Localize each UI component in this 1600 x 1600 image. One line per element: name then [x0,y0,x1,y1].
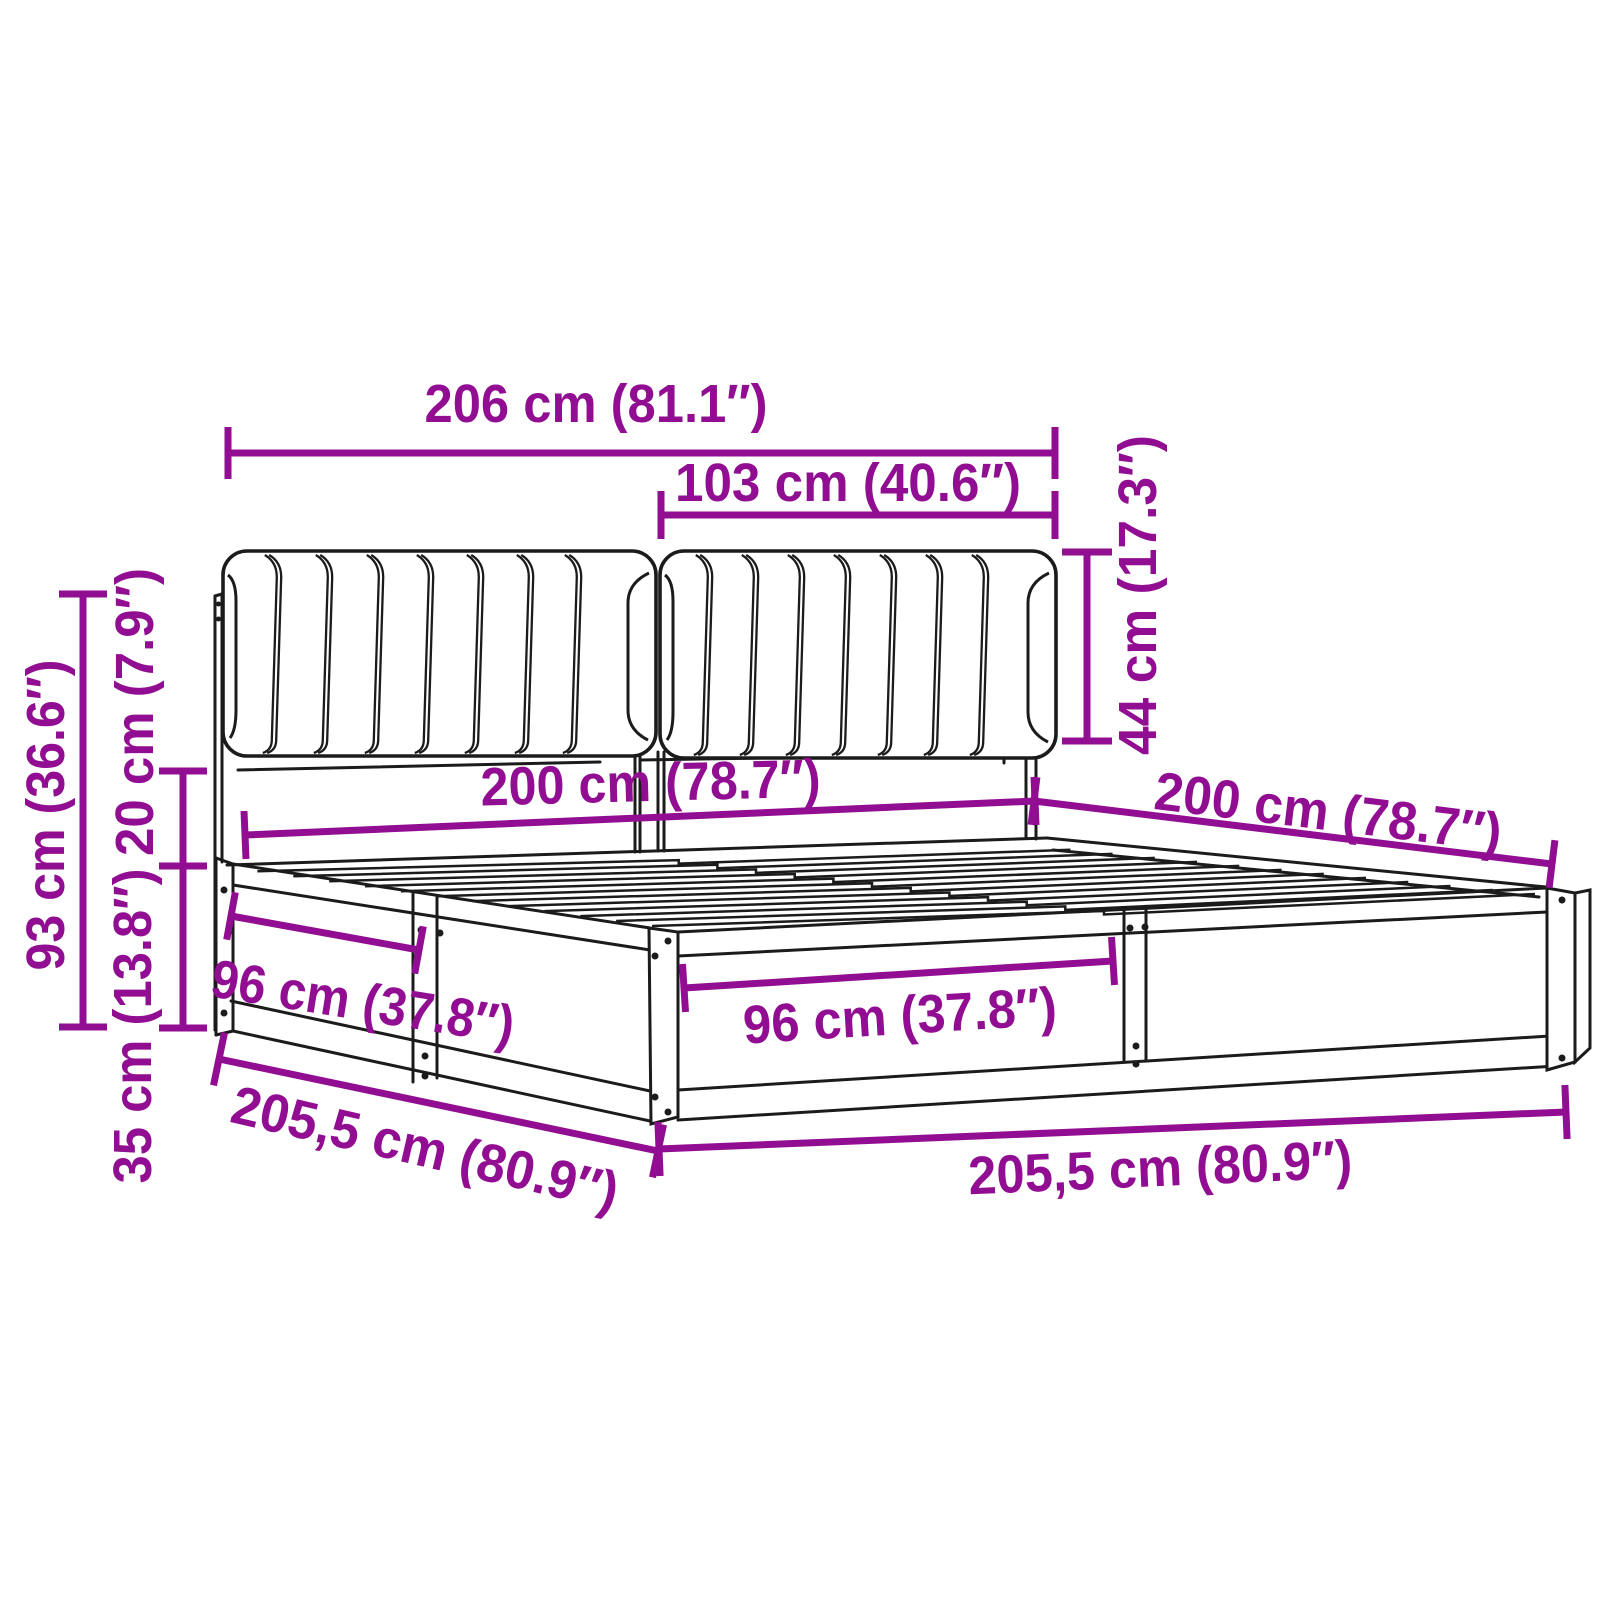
svg-text:93 cm (36.6″): 93 cm (36.6″) [16,660,76,971]
svg-text:35 cm (13.8″): 35 cm (13.8″) [103,869,163,1184]
svg-text:44 cm (17.3″): 44 cm (17.3″) [1108,435,1168,755]
svg-text:20 cm (7.9″): 20 cm (7.9″) [105,568,165,856]
svg-text:103 cm (40.6″): 103 cm (40.6″) [675,453,1021,513]
svg-text:200 cm (78.7″): 200 cm (78.7″) [480,749,821,818]
svg-text:206 cm (81.1″): 206 cm (81.1″) [425,374,768,434]
